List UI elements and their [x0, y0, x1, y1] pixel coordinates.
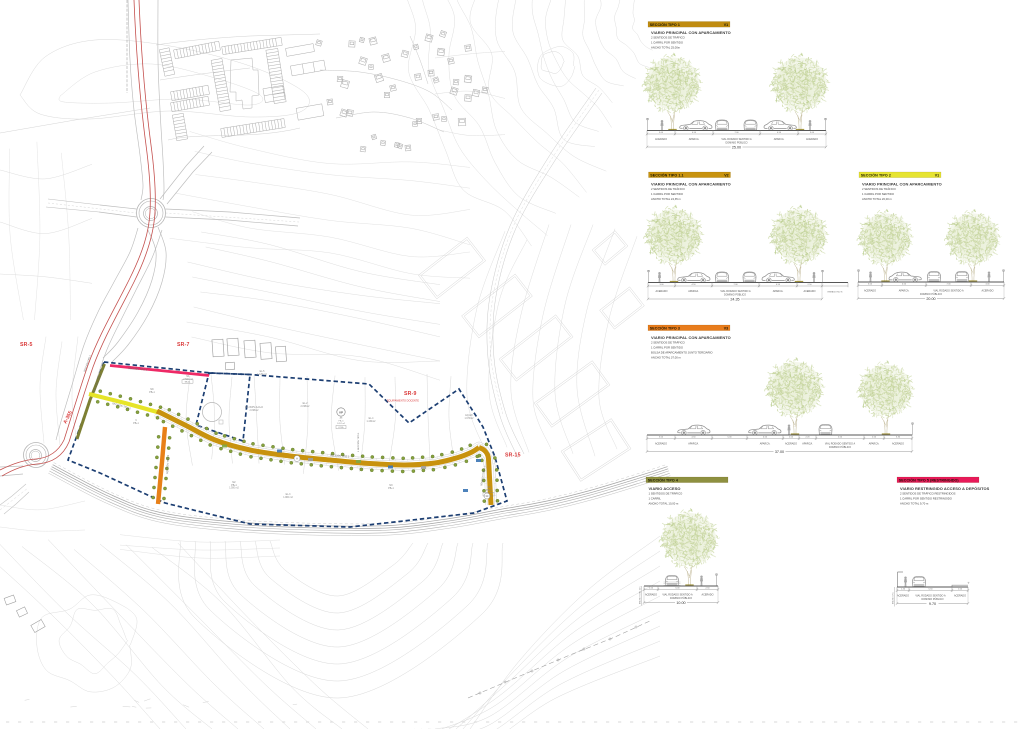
svg-text:10.00: 10.00	[676, 601, 685, 605]
svg-text:1 CARRIL POR SENTIDO RESTRINGI: 1 CARRIL POR SENTIDO RESTRINGIDO	[900, 497, 952, 501]
svg-text:SECCIÓN TIPO 3: SECCIÓN TIPO 3	[650, 325, 680, 330]
svg-text:APARCA.: APARCA.	[688, 443, 699, 446]
svg-text:24.35: 24.35	[730, 297, 739, 301]
svg-text:2 SENTIDOS DE TRÁFICO RESTRING: 2 SENTIDOS DE TRÁFICO RESTRINGIDOS	[900, 492, 956, 496]
svg-text:SR-9: SR-9	[404, 391, 417, 397]
svg-text:APARCA.: APARCA.	[774, 138, 785, 141]
svg-text:ANCHO TOTAL 25,00m: ANCHO TOTAL 25,00m	[651, 45, 681, 49]
svg-text:PB+1: PB+1	[149, 392, 155, 394]
svg-text:APARCA.: APARCA.	[802, 443, 813, 446]
svg-text:PB+1: PB+1	[231, 485, 237, 487]
svg-text:ANCHO TOTAL 20,00 m: ANCHO TOTAL 20,00 m	[862, 197, 893, 201]
svg-text:VIARIO PRINCIPAL CON APARCAMIE: VIARIO PRINCIPAL CON APARCAMIENTO	[651, 30, 731, 35]
svg-text:1 CARRIL: 1 CARRIL	[649, 497, 662, 501]
svg-text:V1: V1	[935, 173, 939, 177]
svg-text:VIAL RODADO SENTIDO A: VIAL RODADO SENTIDO A	[721, 138, 752, 141]
svg-text:VIARIO PRINCIPAL CON APARCAMIE: VIARIO PRINCIPAL CON APARCAMIENTO	[651, 335, 731, 340]
svg-text:2 SENTIDOS DE TRÁFICO: 2 SENTIDOS DE TRÁFICO	[651, 341, 685, 345]
svg-text:VIARIO PRINCIPAL CON APARCAMIE: VIARIO PRINCIPAL CON APARCAMIENTO	[651, 182, 731, 187]
svg-text:VIARIO ACCESO: VIARIO ACCESO	[649, 486, 681, 491]
svg-text:ACERADO: ACERADO	[892, 443, 904, 446]
svg-text:EL-5: EL-5	[260, 371, 266, 373]
svg-text:ACERADO: ACERADO	[897, 595, 909, 598]
svg-text:2 SENTIDOS DE TRÁFICO: 2 SENTIDOS DE TRÁFICO	[651, 187, 685, 191]
svg-text:APARCA.: APARCA.	[760, 443, 771, 446]
svg-text:20.00: 20.00	[926, 297, 935, 301]
svg-text:SR-15: SR-15	[505, 453, 521, 459]
svg-text:EL-4: EL-4	[369, 418, 375, 420]
svg-text:DOMINIO PÚBLICO: DOMINIO PÚBLICO	[920, 293, 942, 296]
svg-text:APARCA.: APARCA.	[688, 290, 699, 293]
svg-text:DOMINIO PÚBLICO: DOMINIO PÚBLICO	[725, 142, 747, 145]
svg-text:PB+6: PB+6	[339, 420, 345, 422]
svg-text:BOLSA DE APARCAMIENTO JUNTO TE: BOLSA DE APARCAMIENTO JUNTO TERCIARIO	[651, 350, 713, 354]
svg-text:ACERADO: ACERADO	[645, 594, 657, 597]
svg-text:ACERADO: ACERADO	[864, 290, 876, 293]
svg-text:ANCHO 9.7m: ANCHO 9.7m	[892, 592, 895, 604]
svg-text:DOMINIO PÚBLICO: DOMINIO PÚBLICO	[724, 294, 746, 297]
svg-text:1.125 m2: 1.125 m2	[257, 374, 267, 376]
svg-text:PB+1: PB+1	[486, 490, 492, 492]
svg-text:ANCHO TOTAL 9,70 m: ANCHO TOTAL 9,70 m	[900, 501, 929, 505]
svg-text:ACERADO: ACERADO	[803, 290, 815, 293]
svg-text:VIAL RODADO SENTIDO A: VIAL RODADO SENTIDO A	[662, 594, 693, 597]
svg-text:VIARIO PRINCIPAL CON APARCAMIE: VIARIO PRINCIPAL CON APARCAMIENTO	[862, 182, 942, 187]
svg-text:2 SENTIDOS DE TRÁFICO: 2 SENTIDOS DE TRÁFICO	[651, 36, 685, 40]
svg-text:APARCA.: APARCA.	[899, 290, 910, 293]
svg-text:VIAL RODADO SENTIDO A: VIAL RODADO SENTIDO A	[720, 290, 751, 293]
svg-text:ACERADO: ACERADO	[954, 595, 966, 598]
svg-text:ANCHO TOTAL 37,00 m: ANCHO TOTAL 37,00 m	[651, 355, 682, 359]
svg-text:2 SENTIDOS DE TRÁFICO: 2 SENTIDOS DE TRÁFICO	[862, 187, 896, 191]
svg-text:2.098m2: 2.098m2	[301, 406, 311, 408]
svg-text:1 CARRIL POR SENTIDO: 1 CARRIL POR SENTIDO	[651, 192, 683, 196]
svg-text:PB+1: PB+1	[133, 423, 139, 425]
svg-text:ACERADO: ACERADO	[981, 290, 993, 293]
svg-text:ACERADO: ACERADO	[655, 443, 667, 446]
svg-text:VIARIO RESTRINGIDO ACCESO A DE: VIARIO RESTRINGIDO ACCESO A DEPÓSITOS	[900, 486, 990, 491]
svg-text:1.982 m2: 1.982 m2	[283, 497, 293, 499]
svg-text:ANCHO TOTAL 10,00 m: ANCHO TOTAL 10,00 m	[649, 501, 680, 505]
svg-text:SECCIÓN TIPO 2: SECCIÓN TIPO 2	[861, 172, 891, 177]
svg-text:ANCHO TOTAL 10m: ANCHO TOTAL 10m	[639, 586, 642, 604]
svg-text:EL-3: EL-3	[286, 494, 292, 496]
svg-text:DOMINIO PÚBLICO: DOMINIO PÚBLICO	[829, 446, 851, 449]
svg-text:1 SECCIÓN TIPO 1: 1 SECCIÓN TIPO 1	[357, 432, 360, 452]
svg-text:ACERADO: ACERADO	[701, 594, 713, 597]
svg-text:SE-4L: SE-4L	[185, 381, 192, 383]
svg-text:V2: V2	[724, 173, 728, 177]
svg-text:ACERADO: ACERADO	[655, 138, 667, 141]
svg-text:EL-2: EL-2	[303, 403, 309, 405]
svg-text:EQ-ED: EQ-ED	[465, 415, 473, 417]
svg-text:A: A	[296, 457, 298, 461]
svg-text:2.096m2: 2.096m2	[250, 410, 260, 412]
svg-text:9.70: 9.70	[929, 602, 936, 606]
svg-text:SR-7: SR-7	[177, 342, 190, 348]
svg-text:SECCIÓN TIPO 1: SECCIÓN TIPO 1	[650, 22, 680, 27]
svg-text:1.434m2: 1.434m2	[367, 421, 377, 423]
svg-text:APARCA.: APARCA.	[869, 443, 880, 446]
svg-text:SR-5: SR-5	[20, 342, 33, 348]
svg-text:37.00: 37.00	[775, 450, 784, 454]
svg-text:SECCIÓN TIPO 5 (RESTRINGIDO): SECCIÓN TIPO 5 (RESTRINGIDO)	[899, 477, 960, 482]
svg-text:APARCA.: APARCA.	[689, 138, 700, 141]
svg-text:SECCIÓN TIPO 4: SECCIÓN TIPO 4	[648, 477, 678, 482]
svg-text:V3: V3	[724, 326, 728, 330]
svg-text:EQ-ISIPS-6+D+D: EQ-ISIPS-6+D+D	[245, 407, 263, 409]
svg-text:VIAL RODADO SENTIDO A: VIAL RODADO SENTIDO A	[933, 290, 964, 293]
svg-text:1.052 m2: 1.052 m2	[337, 423, 346, 425]
svg-text:1.979m2: 1.979m2	[465, 418, 475, 420]
svg-text:ANCHO TOTAL 24,35 m: ANCHO TOTAL 24,35 m	[651, 197, 682, 201]
svg-text:PB+1: PB+1	[388, 488, 394, 490]
svg-text:EQUIPAMIENTO DOCENTE: EQUIPAMIENTO DOCENTE	[387, 400, 419, 403]
svg-text:ACERADO: ACERADO	[806, 138, 818, 141]
svg-text:VP: VP	[339, 410, 343, 414]
svg-text:1 CARRIL POR SENTIDO: 1 CARRIL POR SENTIDO	[651, 41, 683, 45]
svg-text:1 CARRIL POR SENTIDO: 1 CARRIL POR SENTIDO	[862, 192, 894, 196]
svg-text:DOMINIO PÚBLICO: DOMINIO PÚBLICO	[921, 598, 943, 601]
svg-text:VIAL RODADO SENTIDO A: VIAL RODADO SENTIDO A	[825, 443, 856, 446]
svg-text:APARCA.: APARCA.	[773, 290, 784, 293]
svg-text:ESPACIO NO S: ESPACIO NO S	[828, 291, 843, 294]
svg-text:67.8h: 67.8h	[338, 427, 343, 429]
svg-text:25.00: 25.00	[732, 145, 741, 149]
svg-text:1.500 m2: 1.500 m2	[229, 488, 239, 490]
svg-text:DOMINIO PÚBLICO: DOMINIO PÚBLICO	[670, 597, 692, 600]
svg-text:ACERADO: ACERADO	[655, 290, 667, 293]
svg-text:ACERADO: ACERADO	[785, 443, 797, 446]
svg-text:SECCIÓN TIPO 1.1: SECCIÓN TIPO 1.1	[650, 172, 683, 177]
svg-text:1 CARRIL POR SENTIDO: 1 CARRIL POR SENTIDO	[651, 346, 683, 350]
svg-text:V1: V1	[724, 23, 728, 27]
svg-text:VIAL RODADO SENTIDO A: VIAL RODADO SENTIDO A	[915, 595, 946, 598]
svg-text:1 SENTIDOS DE TRÁFICO: 1 SENTIDOS DE TRÁFICO	[649, 492, 683, 496]
